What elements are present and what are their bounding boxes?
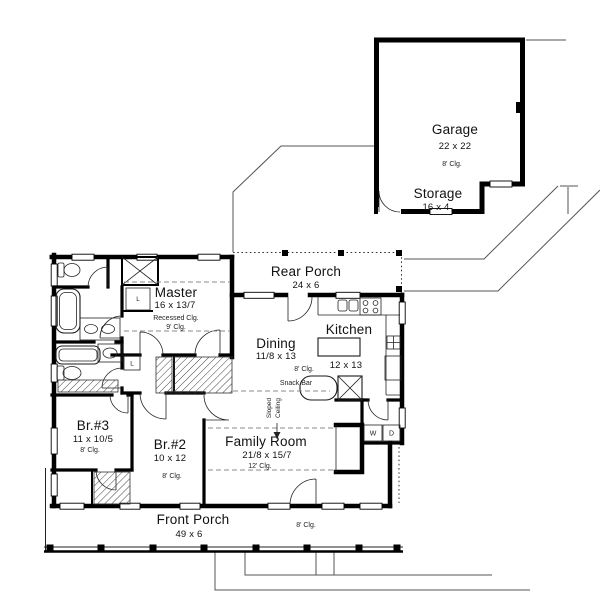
- linen-label-2: L: [130, 361, 134, 368]
- fireplace: [336, 425, 362, 472]
- sloped-ceiling-label-1: Sloped: [266, 398, 273, 419]
- pantry-icon: [338, 376, 362, 400]
- hall-closet-large: [174, 357, 232, 393]
- family-room-dims: 21/8 x 15/7: [242, 450, 291, 461]
- storage-label: Storage: [414, 186, 463, 201]
- br3-closet: [94, 472, 130, 504]
- floor-plan-drawing: Garage 22 x 22 8' Clg. Storage 16 x 4 Re…: [0, 0, 600, 616]
- utility-door: [368, 400, 388, 420]
- br3-dims: 11 x 10/5: [73, 434, 113, 445]
- master-label: Master: [155, 285, 198, 300]
- master-door-left: [140, 332, 163, 355]
- tub-icon: [56, 289, 80, 333]
- dining-dims: 11/8 x 13: [256, 351, 296, 362]
- wc-door: [88, 267, 108, 287]
- br3-label: Br.#3: [77, 418, 110, 433]
- family-room-clg: 12' Clg.: [248, 463, 272, 470]
- rear-porch-dims: 24 x 6: [292, 280, 319, 291]
- hall-closet-small: [156, 357, 172, 393]
- garage-pilaster: [516, 102, 523, 113]
- washer-label: W: [370, 431, 377, 438]
- kitchen-fixtures: [300, 297, 401, 400]
- kitchen-label: Kitchen: [326, 322, 372, 337]
- family-room-label: Family Room: [225, 434, 307, 449]
- br2-dims: 10 x 12: [154, 453, 187, 464]
- garage-label: Garage: [432, 122, 478, 137]
- toilet-icon: [58, 263, 80, 277]
- storage-dims: 16 x 4: [422, 202, 449, 213]
- rear-porch-door: [288, 297, 312, 321]
- br3-clg: 8' Clg.: [80, 447, 100, 454]
- floor-plan: Garage 22 x 22 8' Clg. Storage 16 x 4 Re…: [0, 0, 600, 616]
- br3-door: [110, 395, 128, 413]
- snack-bar-label: Snack Bar: [280, 380, 313, 387]
- garage-clg: 8' Clg.: [442, 161, 462, 168]
- front-door: [290, 479, 316, 505]
- garage-dims: 22 x 22: [439, 141, 472, 152]
- family-room-door: [204, 395, 229, 420]
- sink-icon: [338, 300, 347, 311]
- island-icon: [318, 338, 360, 356]
- master-dims: 16 x 13/7: [155, 300, 196, 311]
- closets: [94, 356, 232, 504]
- dining-label: Dining: [256, 336, 295, 351]
- range-icon: [360, 298, 381, 315]
- br2-door: [140, 393, 166, 419]
- refrigerator-icon: [385, 356, 401, 380]
- cooktop-icon: [387, 336, 400, 349]
- master-bath-door: [100, 316, 122, 338]
- front-porch-clg: 8' Clg.: [296, 522, 316, 529]
- front-porch-dims: 49 x 6: [175, 529, 202, 540]
- kitchen-dims: 12 x 13: [330, 360, 363, 371]
- rear-porch-label: Rear Porch: [271, 264, 341, 279]
- br2-label: Br.#2: [154, 437, 187, 452]
- front-porch-label: Front Porch: [157, 512, 230, 527]
- master-clg: 9' Clg.: [166, 324, 186, 331]
- hall-bath-fixtures: [56, 344, 122, 392]
- linen-label-1: L: [136, 296, 140, 303]
- sloped-ceiling-label-2: Ceiling: [275, 398, 282, 418]
- dining-clg: 8' Clg.: [294, 366, 314, 373]
- br2-clg: 8' Clg.: [162, 473, 182, 480]
- shower-icon: [122, 257, 158, 285]
- master-door-right: [195, 330, 220, 355]
- master-note: Recessed Clg.: [153, 315, 199, 322]
- dryer-label: D: [389, 431, 394, 438]
